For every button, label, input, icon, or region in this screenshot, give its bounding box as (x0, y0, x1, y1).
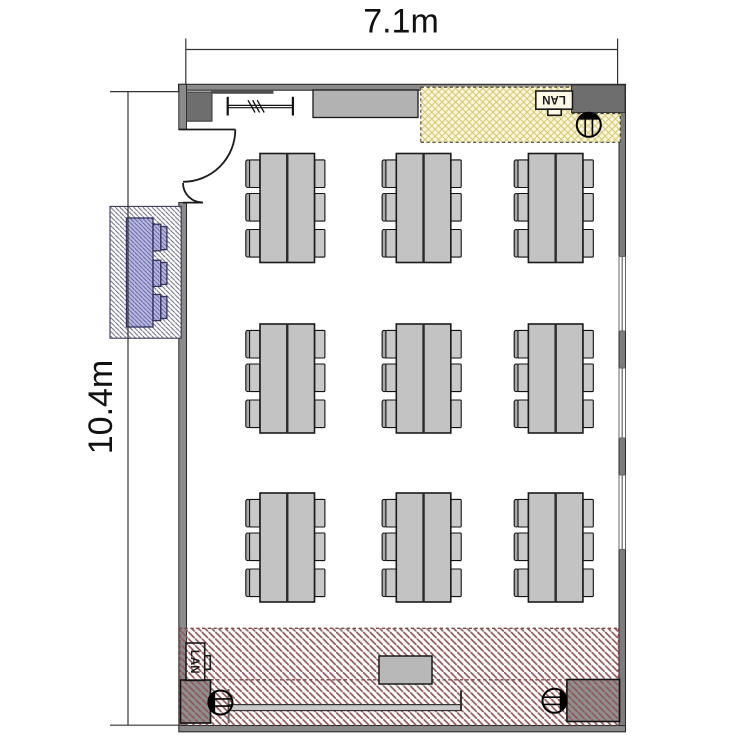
svg-text:10.4m: 10.4m (82, 360, 120, 455)
svg-text:7.1m: 7.1m (363, 3, 439, 41)
svg-text:LAN: LAN (542, 93, 566, 105)
svg-text:LAN: LAN (188, 650, 200, 674)
